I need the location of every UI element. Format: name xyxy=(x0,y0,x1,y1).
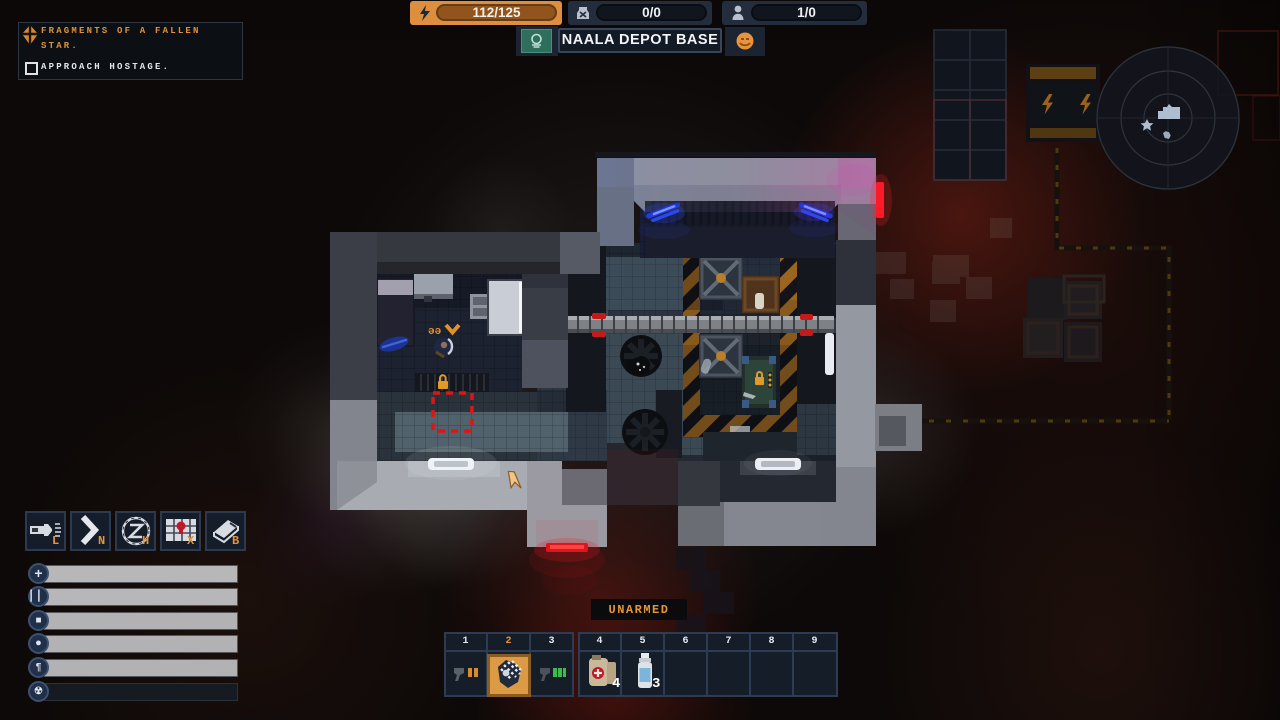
svg-text:əə: əə xyxy=(428,326,442,338)
